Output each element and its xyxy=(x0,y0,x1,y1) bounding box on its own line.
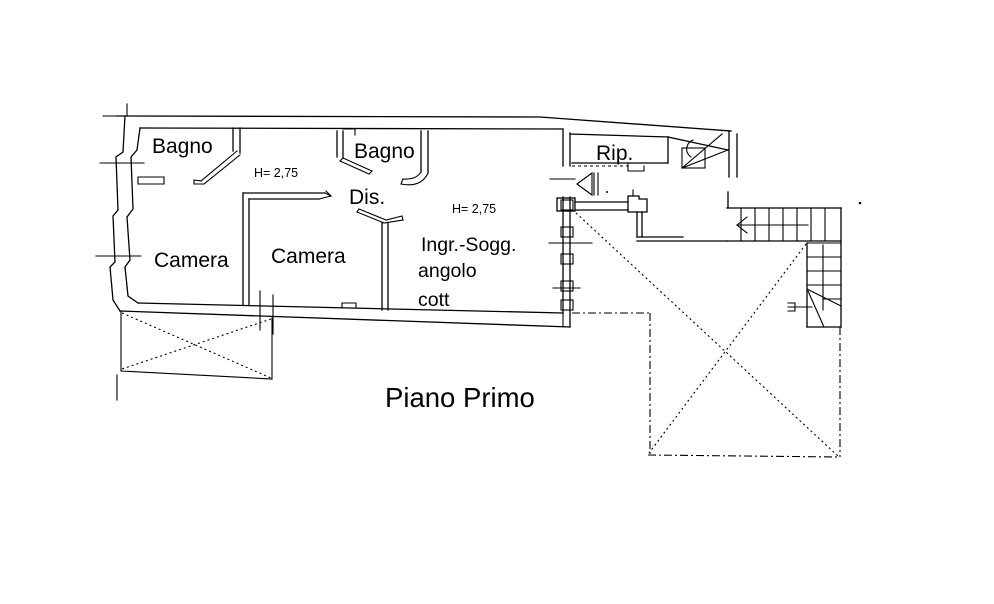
room-label-dis: Dis. xyxy=(349,186,385,209)
wall-stub xyxy=(138,177,164,184)
entrance-door xyxy=(550,173,608,195)
door-leaf xyxy=(204,155,240,184)
dis-door xyxy=(357,209,403,310)
wall-pillar xyxy=(628,196,647,212)
room-label-rip: Rip. xyxy=(596,142,633,165)
room-label-cott: cott xyxy=(418,289,450,311)
terrace-diagonal xyxy=(649,244,806,453)
height-annotation-right: H= 2,75 xyxy=(452,202,496,216)
landing-walls xyxy=(557,190,727,241)
balcony-outline xyxy=(117,311,272,400)
room-label-ingr-soggiorno: Ingr.-Sogg. xyxy=(421,234,516,256)
room-label-camera-left: Camera xyxy=(154,249,229,272)
top-right-wall xyxy=(682,132,737,208)
room-label-angolo: angolo xyxy=(418,260,477,282)
terrace-diagonal xyxy=(576,213,838,456)
terrace-dashed-outline xyxy=(572,213,840,457)
stair-break-line xyxy=(807,289,841,306)
external-stairs-upper xyxy=(727,208,841,241)
floor-title: Piano Primo xyxy=(385,382,535,413)
balcony-diagonal xyxy=(122,313,271,378)
stair-mark xyxy=(788,303,795,311)
speck xyxy=(606,191,608,193)
floor-plan: Bagno Bagno H= 2,75 H= 2,75 Dis. Camera … xyxy=(0,0,994,604)
speck xyxy=(859,202,862,205)
balcony-diagonal xyxy=(122,319,271,369)
height-annotation-left: H= 2,75 xyxy=(254,166,298,180)
external-stairs-lower xyxy=(788,208,841,327)
room-label-camera-middle: Camera xyxy=(271,245,346,268)
winder-fan-line xyxy=(682,134,722,168)
door-leaf xyxy=(359,209,402,220)
door-leaf-triangle xyxy=(577,173,592,195)
top-wall xyxy=(103,104,731,131)
door-swing-arc xyxy=(403,172,421,179)
room-label-bagno-middle: Bagno xyxy=(354,140,415,163)
room-label-bagno-left: Bagno xyxy=(152,135,213,158)
ingr-right-wall xyxy=(549,197,592,327)
floor-plan-sheet: Bagno Bagno H= 2,75 H= 2,75 Dis. Camera … xyxy=(0,0,994,604)
bottom-wall xyxy=(120,291,570,334)
